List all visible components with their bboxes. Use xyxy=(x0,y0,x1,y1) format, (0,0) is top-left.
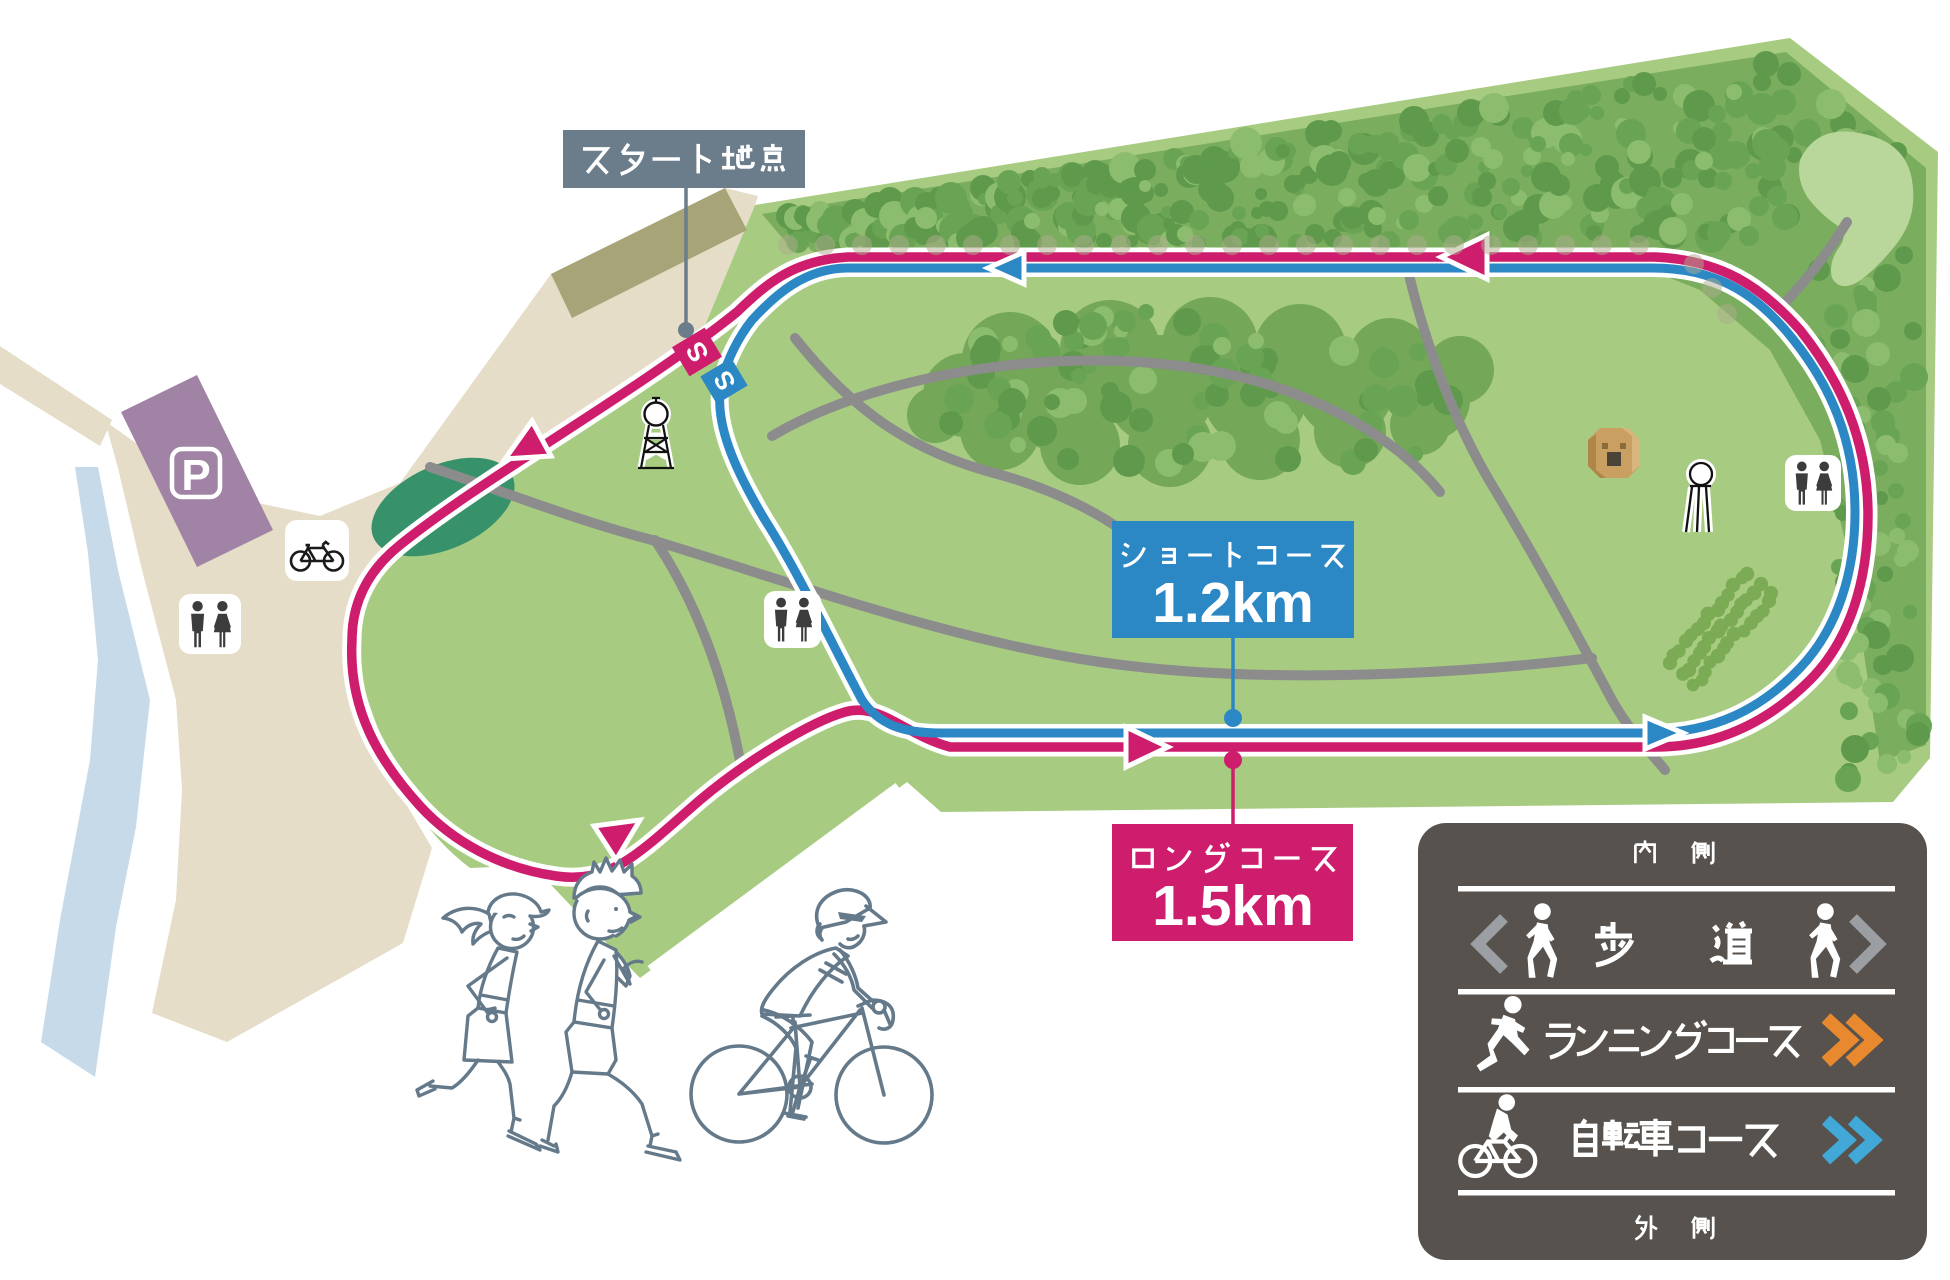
svg-text:P: P xyxy=(181,451,210,500)
svg-text:1.2km: 1.2km xyxy=(1152,571,1314,635)
svg-text:1.5km: 1.5km xyxy=(1152,874,1314,938)
